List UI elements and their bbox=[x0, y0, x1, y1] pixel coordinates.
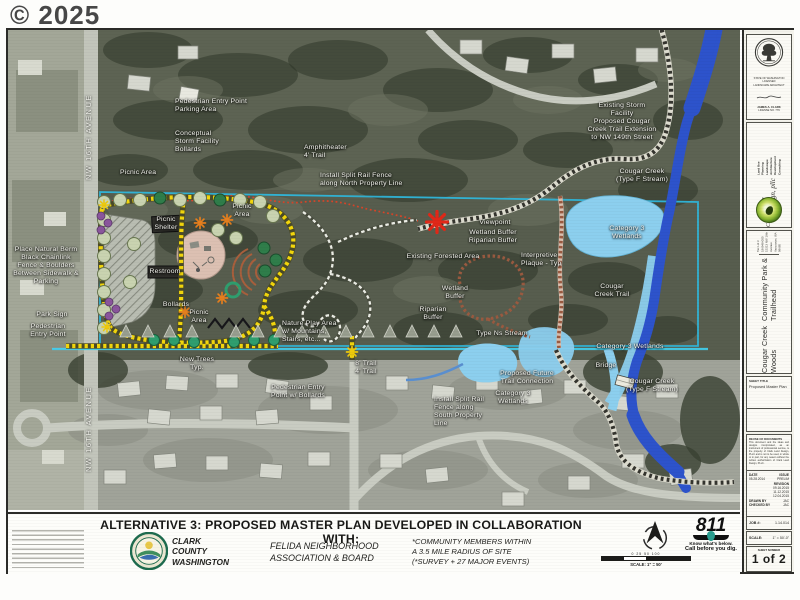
landscape-architect-stamp: STATE OF WASHINGTON LICENSED LANDSCAPE A… bbox=[746, 34, 792, 120]
label-fence-north: Install Split Rail Fence along North Pro… bbox=[320, 172, 402, 188]
sheet-title-box: SHEET TITLE Proposed Master Plan bbox=[746, 376, 792, 410]
sheet-title-value: Proposed Master Plan bbox=[749, 385, 789, 389]
firm-logo-block: Clark Land Design, pllc Land Use Plannin… bbox=[746, 122, 792, 228]
reuse-body: This document and the ideas and designs … bbox=[749, 441, 789, 465]
label-viewpoint: Viewpoint bbox=[479, 219, 510, 227]
reuse-of-documents-box: REUSE OF DOCUMENTS This document and the… bbox=[746, 434, 792, 472]
sheet-number-value: 1 of 2 bbox=[747, 552, 791, 566]
label-picnic-area-west: Picnic Area bbox=[120, 169, 156, 177]
label-natural-berm: Place Natural Berm Black Chainlink Fence… bbox=[13, 246, 79, 286]
plan-sheet: Pedestrian Entry Point Parking AreaConce… bbox=[6, 28, 794, 574]
copyright-watermark: © 2025 bbox=[10, 0, 100, 31]
label-existing-storm-facility: Existing Storm Facility Proposed Cougar … bbox=[588, 102, 657, 142]
issue-value: PRELIM bbox=[777, 477, 789, 481]
label-nature-play-area: Nature Play Area w/ Mountains, Stairs, e… bbox=[282, 320, 337, 344]
clark-county-seal-icon bbox=[130, 532, 168, 570]
titleblock-column: STATE OF WASHINGTON LICENSED LANDSCAPE A… bbox=[742, 30, 794, 572]
label-cougar-creek-north: Cougar Creek (Type F Stream) bbox=[616, 168, 668, 184]
label-cougar-creek-south: Cougar Creek (Type F Stream) bbox=[626, 378, 678, 394]
label-trail-widths: 8' Trail 4' Trail bbox=[355, 360, 376, 376]
map-area: Pedestrian Entry Point Parking AreaConce… bbox=[8, 30, 740, 510]
label-wetland-riparian-buffer: Wetland Buffer Riparian Buffer bbox=[469, 229, 517, 245]
firm-logo-icon bbox=[756, 197, 782, 223]
firm-services: Land Use Planning Landscape Architecture… bbox=[756, 149, 781, 175]
partner-felida-neighborhood: FELIDA NEIGHBORHOOD ASSOCIATION & BOARD bbox=[270, 541, 379, 564]
label-picnic-shelter: Picnic Shelter bbox=[155, 216, 178, 232]
date-issue-box: DATEISSUE 05.28.2014PRELIM REVISION 09.1… bbox=[746, 470, 792, 518]
street-label-nw-16th-avenue-south: NW 16TH AVENUE bbox=[84, 380, 93, 472]
label-conceptual-storm-facility: Conceptual Storm Facility Bollards bbox=[175, 130, 219, 154]
date-value: 05.28.2014 bbox=[749, 477, 765, 481]
label-category3-wetlands-small: Category 3 Wetlands bbox=[495, 390, 530, 406]
partner-community-members: *COMMUNITY MEMBERS WITHIN A 3.5 MILE RAD… bbox=[412, 537, 531, 567]
checked-by-label: CHECKED BY bbox=[749, 503, 770, 507]
label-existing-forested-area: Existing Forested Area bbox=[407, 253, 480, 261]
stamp-tree-seal-icon bbox=[752, 36, 786, 72]
label-wetland-buffer: Wetland Buffer bbox=[442, 285, 468, 301]
project-address: Tax Lot # 186948-000 15213 NW 16th Avenu… bbox=[755, 231, 783, 252]
label-bridge: Bridge bbox=[596, 362, 617, 370]
blank-revision-box bbox=[746, 408, 792, 432]
call-811-logo: 811 Know what's below. Call before you d… bbox=[684, 516, 738, 552]
stamp-license: LICENSE NO. 779 bbox=[747, 109, 791, 112]
label-category3-wetlands: Category 3 Wetlands bbox=[609, 225, 644, 241]
label-pedestrian-entry-bollards: Pedestrian Entry Point w/ Bollards bbox=[271, 384, 325, 400]
collaboration-banner: ALTERNATIVE 3: PROPOSED MASTER PLAN DEVE… bbox=[8, 512, 740, 574]
project-title-block: Cougar Creek Woods Community Park & Trai… bbox=[746, 230, 792, 374]
scale-bar: 0 25 50 100 SCALE: 1" = 50' bbox=[598, 552, 694, 567]
stamp-signature-icon bbox=[756, 95, 782, 100]
label-bollards: Bollards bbox=[163, 301, 189, 309]
map-labels-layer: Pedestrian Entry Point Parking AreaConce… bbox=[8, 30, 740, 510]
label-amphitheater: Amphitheater 4' Trail bbox=[304, 144, 347, 160]
scale-label: SCALE: bbox=[749, 536, 762, 540]
job-value: 1.14.014 bbox=[775, 521, 789, 525]
label-restroom: Restroom bbox=[149, 268, 180, 276]
label-future-trail-connection: Proposed Future Trail Connection bbox=[500, 370, 554, 386]
partner-clark-county: CLARK COUNTY WASHINGTON bbox=[172, 536, 229, 567]
label-cougar-creek-trail: Cougar Creek Trail bbox=[594, 283, 629, 299]
checked-by-value: JAC bbox=[783, 503, 789, 507]
sheet-title-label: SHEET TITLE bbox=[749, 379, 789, 383]
job-number-box: JOB #: 1.14.014 bbox=[746, 516, 792, 530]
label-new-trees: New Trees Typ. bbox=[180, 356, 214, 372]
stamp-org-text: STATE OF WASHINGTON LICENSED LANDSCAPE A… bbox=[747, 77, 791, 87]
811-line2: Call before you dig. bbox=[684, 546, 738, 552]
project-title-1: Cougar Creek Woods bbox=[759, 323, 779, 373]
811-icon: 811 bbox=[693, 516, 729, 540]
scale-bar-line bbox=[601, 556, 691, 561]
label-type-ns-stream: Type Ns Stream bbox=[476, 330, 528, 338]
north-arrow-icon bbox=[640, 520, 670, 552]
label-interpretive-plaque: Interpretive Plaque - Typ bbox=[521, 252, 561, 268]
street-label-nw-16th-avenue-north: NW 16TH AVENUE bbox=[84, 88, 93, 180]
project-title-2: Community Park & Trailhead bbox=[759, 254, 779, 321]
label-picnic-area-south: Picnic Area bbox=[189, 309, 208, 325]
label-category3-wetlands-south: Category 3 Wetlands bbox=[596, 343, 663, 351]
label-riparian-buffer: Riparian Buffer bbox=[420, 306, 447, 322]
label-fence-south: Install Split Rail Fence along South Pro… bbox=[434, 396, 484, 428]
scale-box: SCALE: 1" = 50'-0" bbox=[746, 531, 792, 545]
fine-print-notes bbox=[12, 530, 84, 570]
scale-value: 1" = 50'-0" bbox=[772, 536, 789, 540]
revision-dates: 09.16.2015 11.12.2015 12.04.2015 bbox=[773, 486, 789, 498]
scale-bar-label: SCALE: 1" = 50' bbox=[598, 562, 694, 567]
job-label: JOB #: bbox=[749, 521, 761, 525]
sheet-number-box: SHEET NUMBER 1 of 2 bbox=[746, 546, 792, 572]
label-pedestrian-entry-parking: Pedestrian Entry Point Parking Area bbox=[175, 98, 247, 114]
label-pedestrian-entry-west: Pedestrian Entry Point bbox=[30, 323, 65, 339]
label-park-sign: Park Sign bbox=[36, 311, 67, 319]
label-picnic-area-north: Picnic Area bbox=[232, 203, 251, 219]
